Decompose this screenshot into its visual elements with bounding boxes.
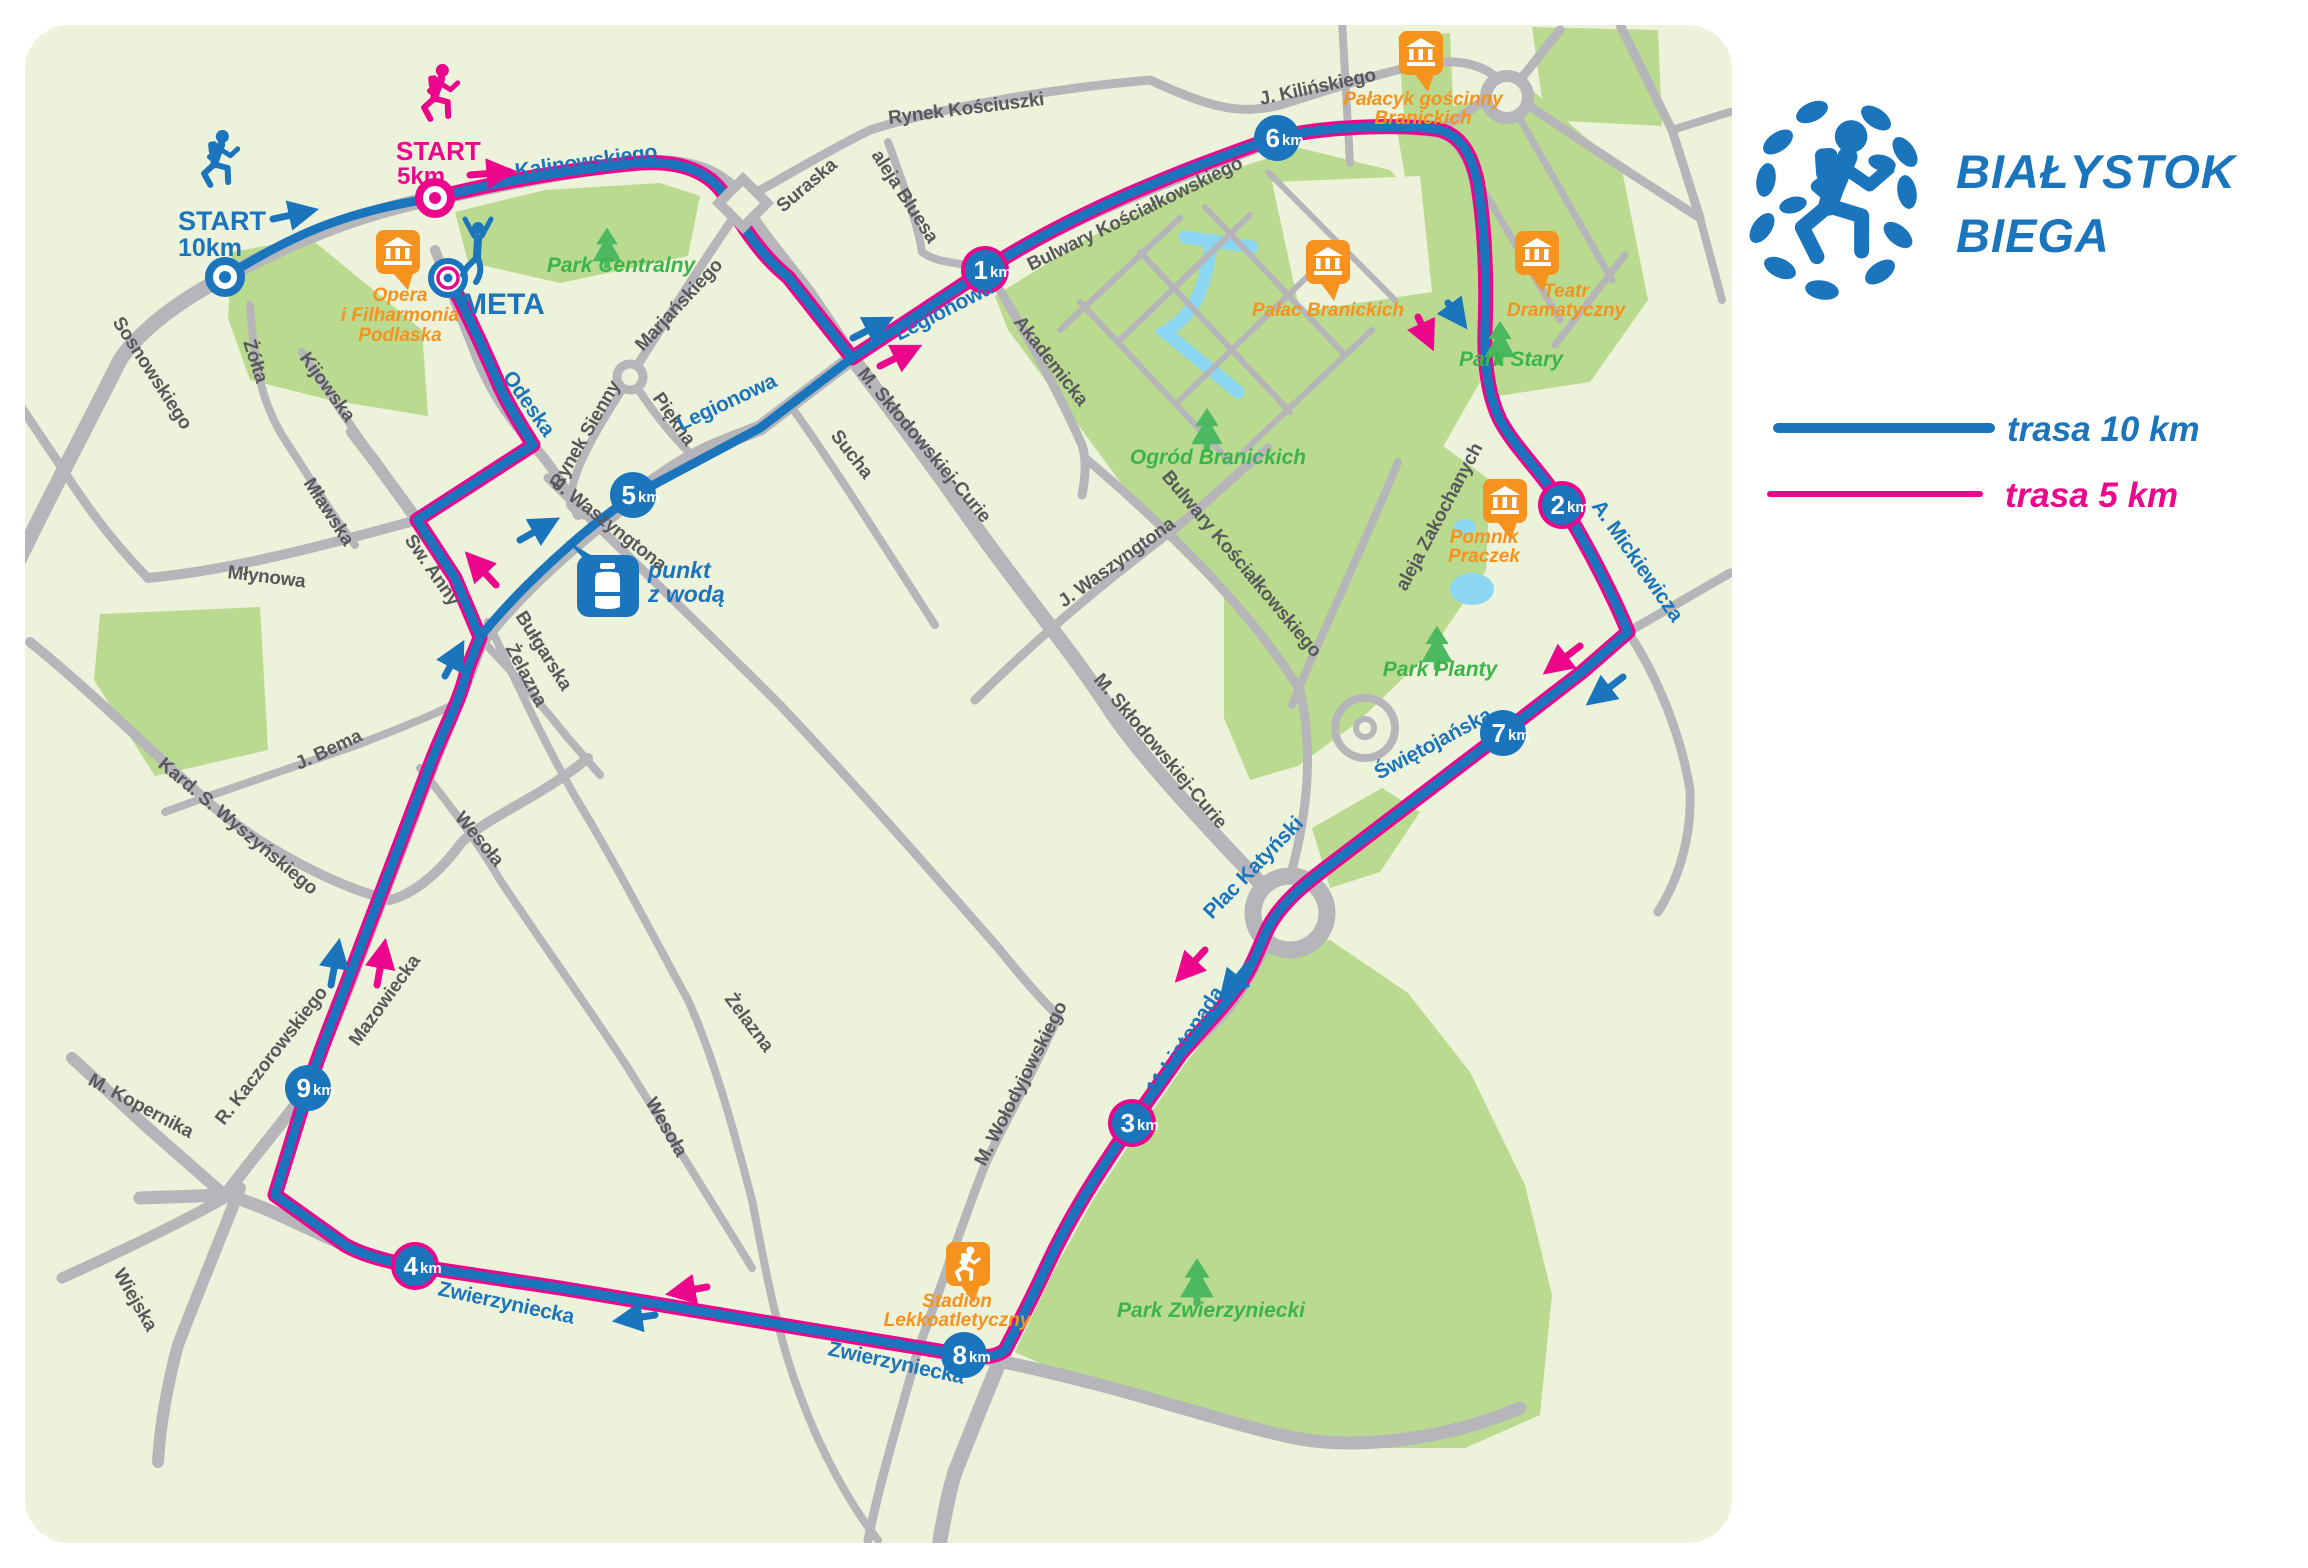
event-logo: BIAŁYSTOK BIEGA	[1744, 96, 2237, 302]
svg-text:Pałac Branickich: Pałac Branickich	[1252, 300, 1404, 321]
svg-text:9: 9	[297, 1073, 311, 1103]
svg-text:km: km	[1282, 132, 1304, 149]
svg-text:i Filharmonia: i Filharmonia	[341, 305, 460, 326]
svg-text:km: km	[1137, 1117, 1159, 1134]
svg-text:4: 4	[404, 1251, 419, 1281]
svg-text:Podlaska: Podlaska	[358, 325, 442, 346]
svg-text:Dramatyczny: Dramatyczny	[1507, 300, 1627, 321]
legend-label-5km: trasa 5 km	[2005, 476, 2178, 515]
svg-text:km: km	[638, 489, 660, 506]
svg-text:10km: 10km	[178, 234, 242, 262]
svg-text:5km: 5km	[397, 163, 445, 190]
svg-text:3: 3	[1121, 1108, 1135, 1138]
svg-text:Praczek: Praczek	[1448, 546, 1521, 567]
svg-text:5: 5	[622, 480, 636, 510]
bottle-icon	[600, 563, 615, 569]
svg-text:km: km	[313, 1082, 335, 1099]
svg-text:META: META	[462, 288, 545, 321]
svg-text:km: km	[969, 1349, 991, 1366]
svg-text:km: km	[420, 1260, 442, 1277]
svg-text:Branickich: Branickich	[1374, 108, 1471, 129]
svg-text:Park Centralny: Park Centralny	[547, 254, 697, 277]
svg-text:Park Planty: Park Planty	[1383, 658, 1499, 681]
svg-text:Pomnik: Pomnik	[1450, 527, 1520, 548]
svg-text:Ogród Branickich: Ogród Branickich	[1130, 446, 1306, 469]
svg-text:Teatr: Teatr	[1543, 281, 1590, 302]
svg-text:km: km	[990, 264, 1012, 281]
svg-text:Stadion: Stadion	[922, 1291, 992, 1312]
svg-text:Park Zwierzyniecki: Park Zwierzyniecki	[1117, 1299, 1306, 1322]
svg-text:km: km	[1508, 727, 1530, 744]
svg-text:Park Stary: Park Stary	[1459, 348, 1564, 371]
map: 1km 2km 3km 4km 5km 6km 7km 8km 9km STAR…	[15, 20, 1732, 1543]
svg-text:6: 6	[1266, 123, 1280, 153]
svg-text:Opera: Opera	[373, 285, 428, 306]
logo-line1: BIAŁYSTOK	[1956, 145, 2238, 198]
course-map-poster: 1km 2km 3km 4km 5km 6km 7km 8km 9km STAR…	[0, 0, 2308, 1568]
logo-line2: BIEGA	[1956, 209, 2110, 262]
svg-text:Lekkoatletyczny: Lekkoatletyczny	[884, 1310, 1032, 1331]
svg-text:z wodą: z wodą	[647, 581, 725, 607]
svg-text:km: km	[1567, 499, 1589, 516]
svg-text:START: START	[396, 136, 481, 166]
legend-label-10km: trasa 10 km	[2007, 410, 2200, 449]
logo-runner-icon	[1795, 118, 1894, 258]
svg-text:Pałacyk gościnny: Pałacyk gościnny	[1343, 89, 1504, 110]
route-legend: trasa 10 km trasa 5 km	[1770, 410, 2200, 515]
svg-text:2: 2	[1551, 490, 1565, 520]
svg-text:START: START	[178, 206, 266, 236]
